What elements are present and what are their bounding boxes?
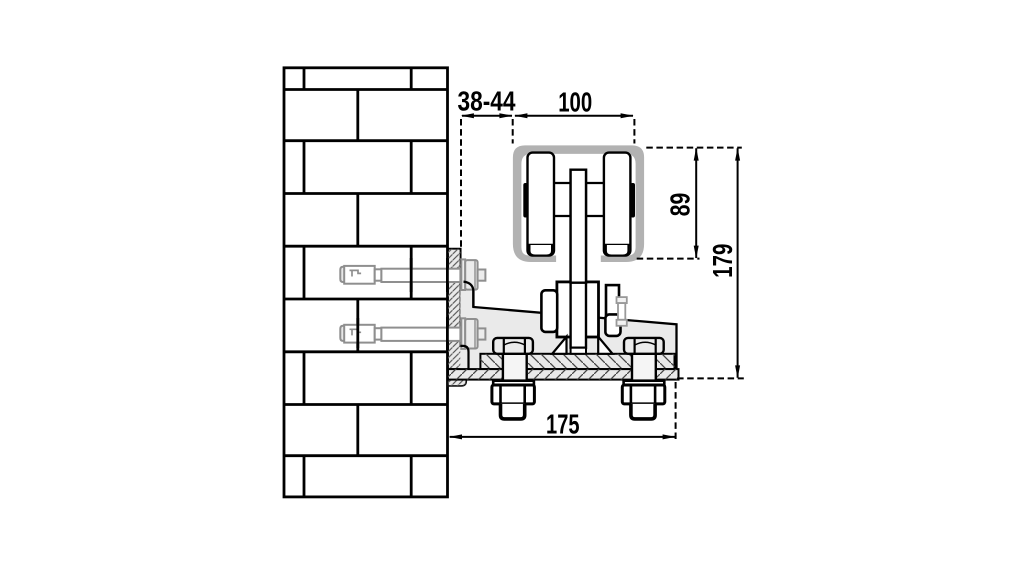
svg-text:175: 175 (546, 408, 580, 439)
svg-text:179: 179 (707, 244, 738, 278)
svg-text:38-44: 38-44 (458, 86, 516, 117)
svg-text:89: 89 (665, 193, 696, 217)
svg-text:100: 100 (558, 86, 592, 117)
